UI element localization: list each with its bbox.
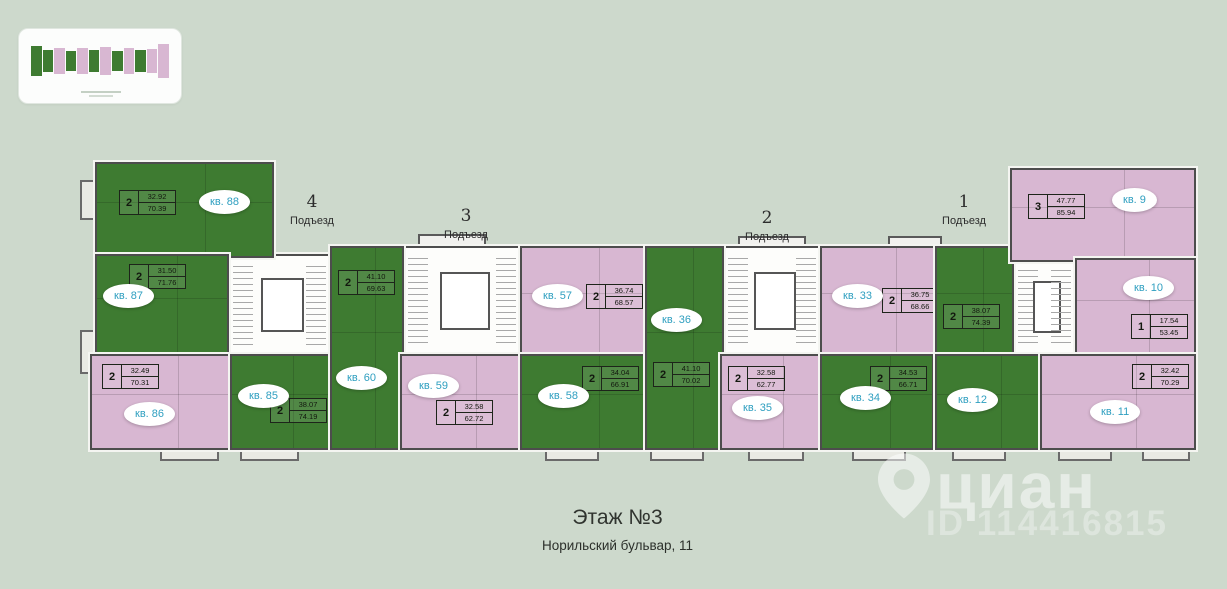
total-area: 74.19 — [290, 411, 326, 422]
footer: Этаж №3 Норильский бульвар, 11 — [455, 506, 780, 553]
living-area: 32.42 — [1152, 365, 1188, 377]
apartment-59-info: 2 32.5862.72 — [436, 400, 493, 425]
total-area: 70.29 — [1152, 377, 1188, 388]
apartment-88-label[interactable]: кв. 88 — [199, 190, 250, 214]
living-area: 17.54 — [1151, 315, 1187, 327]
room-count: 3 — [1029, 195, 1048, 218]
entrance-number: 1 — [932, 192, 996, 212]
thumbnail-caption-line — [89, 95, 113, 97]
thumbnail-block — [158, 44, 169, 78]
entrance-2-label: 2 Подъезд — [735, 208, 799, 243]
thumbnail-block — [124, 48, 135, 74]
floor-title: Этаж №3 — [455, 506, 780, 530]
total-area: 62.77 — [748, 379, 784, 390]
entrance-1-label: 1 Подъезд — [932, 192, 996, 227]
floor-plan-page: 2 32.9270.39 кв. 88 2 31.5071.76 кв. 87 … — [0, 0, 1227, 589]
entrance-word: Подъезд — [280, 215, 344, 227]
thumbnail-block — [66, 51, 77, 71]
room-count: 2 — [1133, 365, 1152, 388]
apartment-57[interactable]: 2 36.7468.57 кв. 57 — [520, 246, 649, 358]
entrance-number: 3 — [434, 206, 498, 226]
apartment-11-label[interactable]: кв. 11 — [1090, 400, 1140, 424]
apartment-11-info: 2 32.4270.29 — [1132, 364, 1189, 389]
thumbnail-block — [147, 49, 158, 73]
thumbnail-block — [89, 50, 100, 72]
room-count: 2 — [120, 191, 139, 214]
entrance-word: Подъезд — [735, 231, 799, 243]
living-area: 32.92 — [139, 191, 175, 203]
living-area: 38.07 — [963, 305, 999, 317]
room-count: 1 — [1132, 315, 1151, 338]
apartment-60-label[interactable]: кв. 60 — [336, 366, 387, 390]
apartment-9-info: 3 47.7785.94 — [1028, 194, 1085, 219]
apartment-35[interactable]: 2 32.5862.77 кв. 35 — [720, 354, 824, 450]
room-count: 2 — [654, 363, 673, 386]
apartment-85-label[interactable]: кв. 85 — [238, 384, 289, 408]
entrance-word: Подъезд — [434, 229, 498, 241]
apartment-57-label[interactable]: кв. 57 — [532, 284, 583, 308]
apartment-86[interactable]: 2 32.4970.31 кв. 86 — [90, 354, 234, 450]
room-count: 2 — [883, 289, 902, 312]
apartment-86-info: 2 32.4970.31 — [102, 364, 159, 389]
side-balcony — [80, 180, 96, 220]
living-area: 41.10 — [673, 363, 709, 375]
apartment-58-label[interactable]: кв. 58 — [538, 384, 589, 408]
thumbnail-caption-line — [81, 91, 121, 93]
apartment-10[interactable]: 1 17.5453.45 кв. 10 — [1075, 258, 1196, 358]
total-area: 66.71 — [890, 379, 926, 390]
apartment-12-info: 2 38.0774.39 — [943, 304, 1000, 329]
living-area: 32.58 — [748, 367, 784, 379]
living-area: 36.75 — [902, 289, 938, 301]
entrance-number: 2 — [735, 208, 799, 228]
stairwell-entrance-2 — [720, 246, 824, 358]
apartment-88[interactable]: 2 32.9270.39 кв. 88 — [95, 162, 274, 258]
floor-plan-thumbnail[interactable] — [18, 28, 182, 104]
apartment-59[interactable]: 2 32.5862.72 кв. 59 — [400, 354, 524, 450]
apartment-12-label[interactable]: кв. 12 — [947, 388, 998, 412]
total-area: 74.39 — [963, 317, 999, 328]
apartment-58[interactable]: 2 34.0466.91 кв. 58 — [520, 354, 649, 450]
living-area: 38.07 — [290, 399, 326, 411]
apartment-58-info: 2 34.0466.91 — [582, 366, 639, 391]
entrance-word: Подъезд — [932, 215, 996, 227]
apartment-10-label[interactable]: кв. 10 — [1123, 276, 1174, 300]
thumbnail-plan-strip — [31, 41, 169, 81]
apartment-36[interactable]: 2 41.1070.02 кв. 36 — [645, 246, 724, 450]
living-area: 32.58 — [456, 401, 492, 413]
thumbnail-block — [112, 51, 123, 71]
living-area: 31.50 — [149, 265, 185, 277]
stairwell-entrance-1 — [1010, 258, 1079, 358]
thumbnail-block — [100, 47, 111, 75]
room-count: 2 — [944, 305, 963, 328]
total-area: 66.91 — [602, 379, 638, 390]
room-count: 2 — [729, 367, 748, 390]
entrance-4-label: 4 Подъезд — [280, 192, 344, 227]
address: Норильский бульвар, 11 — [455, 538, 780, 553]
cian-pin-icon — [878, 453, 930, 519]
apartment-35-info: 2 32.5862.77 — [728, 366, 785, 391]
stairwell-entrance-3 — [400, 246, 524, 358]
total-area: 71.76 — [149, 277, 185, 288]
apartment-36-info: 2 41.1070.02 — [653, 362, 710, 387]
living-area: 36.74 — [606, 285, 642, 297]
apartment-33-info: 2 36.7568.66 — [882, 288, 939, 313]
apartment-85[interactable]: 2 38.0774.19 кв. 85 — [230, 354, 334, 450]
watermark-id: ID 114416815 — [926, 504, 1168, 544]
apartment-9[interactable]: 3 47.7785.94 кв. 9 — [1010, 168, 1196, 262]
apartment-88-info: 2 32.9270.39 — [119, 190, 176, 215]
apartment-10-info: 1 17.5453.45 — [1131, 314, 1188, 339]
apartment-87[interactable]: 2 31.5071.76 кв. 87 — [95, 254, 229, 358]
total-area: 62.72 — [456, 413, 492, 424]
living-area: 41.10 — [358, 271, 394, 283]
total-area: 53.45 — [1151, 327, 1187, 338]
room-count: 2 — [339, 271, 358, 294]
apartment-36-label[interactable]: кв. 36 — [651, 308, 702, 332]
thumbnail-block — [135, 50, 146, 72]
stairwell-entrance-4 — [225, 254, 334, 358]
apartment-12-upper[interactable]: 2 38.0774.39 — [935, 246, 1014, 358]
thumbnail-block — [54, 48, 65, 74]
apartment-60-info: 2 41.1069.63 — [338, 270, 395, 295]
thumbnail-block — [31, 46, 42, 76]
entrance-number: 4 — [280, 192, 344, 212]
room-count: 2 — [587, 285, 606, 308]
apartment-87-label[interactable]: кв. 87 — [103, 284, 154, 308]
apartment-34-label[interactable]: кв. 34 — [840, 386, 891, 410]
apartment-34[interactable]: 2 34.5366.71 кв. 34 — [820, 354, 934, 450]
apartment-33[interactable]: 2 36.7568.66 кв. 33 — [820, 246, 944, 358]
living-area: 32.49 — [122, 365, 158, 377]
total-area: 70.02 — [673, 375, 709, 386]
total-area: 68.57 — [606, 297, 642, 308]
total-area: 68.66 — [902, 301, 938, 312]
apartment-59-label[interactable]: кв. 59 — [408, 374, 459, 398]
living-area: 34.04 — [602, 367, 638, 379]
apartment-11[interactable]: 2 32.4270.29 кв. 11 — [1040, 354, 1196, 450]
entrance-3-label: 3 Подъезд — [434, 206, 498, 241]
apartment-60[interactable]: 2 41.1069.63 кв. 60 — [330, 246, 404, 450]
thumbnail-block — [43, 50, 54, 72]
total-area: 69.63 — [358, 283, 394, 294]
apartment-35-label[interactable]: кв. 35 — [732, 396, 783, 420]
living-area: 47.77 — [1048, 195, 1084, 207]
total-area: 70.31 — [122, 377, 158, 388]
apartment-9-label[interactable]: кв. 9 — [1112, 188, 1157, 212]
room-count: 2 — [103, 365, 122, 388]
living-area: 34.53 — [890, 367, 926, 379]
apartment-57-info: 2 36.7468.57 — [586, 284, 643, 309]
apartment-86-label[interactable]: кв. 86 — [124, 402, 175, 426]
room-count: 2 — [437, 401, 456, 424]
room-count: 2 — [583, 367, 602, 390]
apartment-33-label[interactable]: кв. 33 — [832, 284, 883, 308]
total-area: 85.94 — [1048, 207, 1084, 218]
total-area: 70.39 — [139, 203, 175, 214]
thumbnail-block — [77, 48, 88, 74]
apartment-12[interactable]: кв. 12 — [935, 354, 1044, 450]
